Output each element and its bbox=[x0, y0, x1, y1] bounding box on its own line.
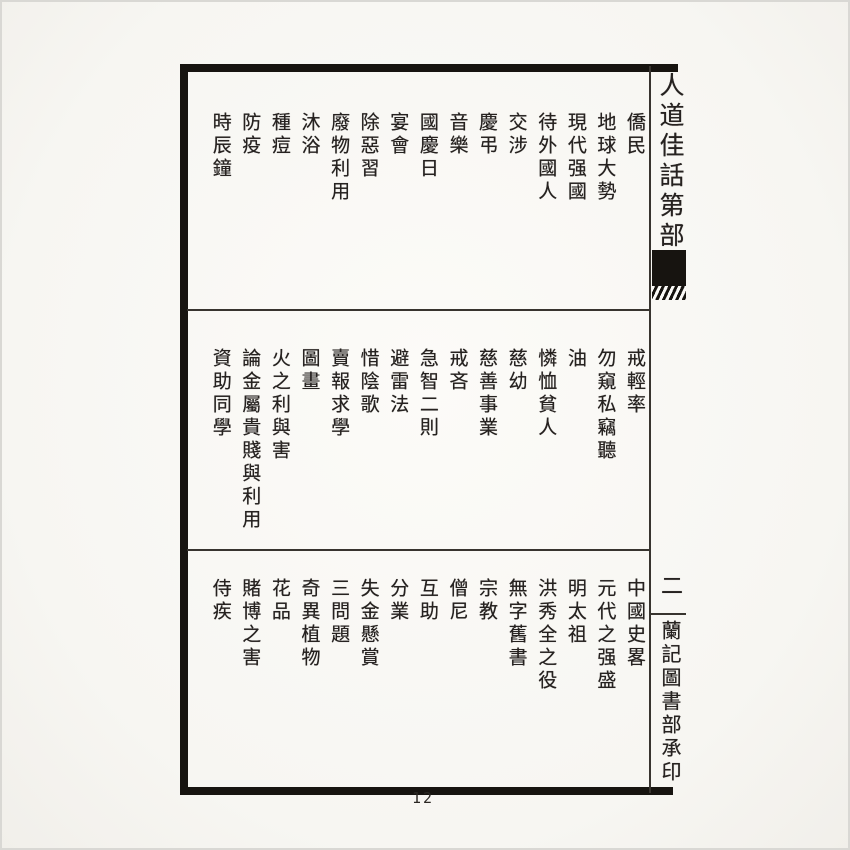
toc-entry: 惜陰歌 bbox=[353, 348, 383, 585]
toc-entry: 互助 bbox=[412, 578, 442, 813]
toc-entry: 三問題 bbox=[323, 578, 353, 813]
toc-entry: 奇異植物 bbox=[294, 578, 324, 813]
publisher-imprint: 蘭記圖書部承印 bbox=[653, 620, 686, 788]
toc-entry: 圖畫 bbox=[294, 348, 324, 585]
spine-volume: 二 bbox=[652, 574, 686, 608]
toc-entry: 宗教 bbox=[471, 578, 501, 813]
toc-entry: 失金懸賞 bbox=[353, 578, 383, 813]
spine-title: 人道佳話第部 bbox=[652, 72, 688, 264]
frame-left-border bbox=[180, 64, 188, 795]
toc-section-middle: 戒輕率勿窺私竊聽油憐恤貧人慈幼慈善事業戒吝急智二則避雷法惜陰歌賣報求學圖畫火之利… bbox=[188, 311, 665, 585]
toc-entry: 無字舊書 bbox=[501, 578, 531, 813]
toc-entry: 資助同學 bbox=[205, 348, 235, 585]
toc-entry: 侍疾 bbox=[205, 578, 235, 813]
toc-entry: 勿窺私竊聽 bbox=[590, 348, 620, 585]
toc-entry: 元代之强盛 bbox=[590, 578, 620, 813]
toc-entry: 戒輕率 bbox=[619, 348, 649, 585]
frame-top-border bbox=[180, 64, 678, 72]
toc-entry: 僧尼 bbox=[442, 578, 472, 813]
toc-entry: 洪秀全之役 bbox=[531, 578, 561, 813]
toc-entry: 分業 bbox=[383, 578, 413, 813]
toc-entry: 慈幼 bbox=[501, 348, 531, 585]
fishtail-marker bbox=[652, 250, 686, 300]
page-number: 12 bbox=[398, 789, 448, 807]
scanned-page: 僑民地球大勢現代强國待外國人交涉慶弔音樂國慶日宴會除惡習廢物利用沐浴種痘防疫時辰… bbox=[0, 0, 850, 850]
toc-entry: 油 bbox=[560, 348, 590, 585]
toc-entry: 明太祖 bbox=[560, 578, 590, 813]
toc-entry: 賣報求學 bbox=[323, 348, 353, 585]
toc-entry: 花品 bbox=[264, 578, 294, 813]
toc-entry: 論金屬貴賤與利用 bbox=[235, 348, 265, 585]
toc-entry: 賭博之害 bbox=[235, 578, 265, 813]
toc-entry: 急智二則 bbox=[412, 348, 442, 585]
toc-entry: 慈善事業 bbox=[471, 348, 501, 585]
toc-entry: 中國史畧 bbox=[619, 578, 649, 813]
toc-section-bottom: 中國史畧元代之强盛明太祖洪秀全之役無字舊書宗教僧尼互助分業失金懸賞三問題奇異植物… bbox=[188, 551, 665, 813]
toc-entry: 憐恤貧人 bbox=[531, 348, 561, 585]
toc-section-top: 僑民地球大勢現代强國待外國人交涉慶弔音樂國慶日宴會除惡習廢物利用沐浴種痘防疫時辰… bbox=[188, 72, 665, 348]
toc-entry: 避雷法 bbox=[383, 348, 413, 585]
toc-entry: 戒吝 bbox=[442, 348, 472, 585]
toc-entry: 火之利與害 bbox=[264, 348, 294, 585]
